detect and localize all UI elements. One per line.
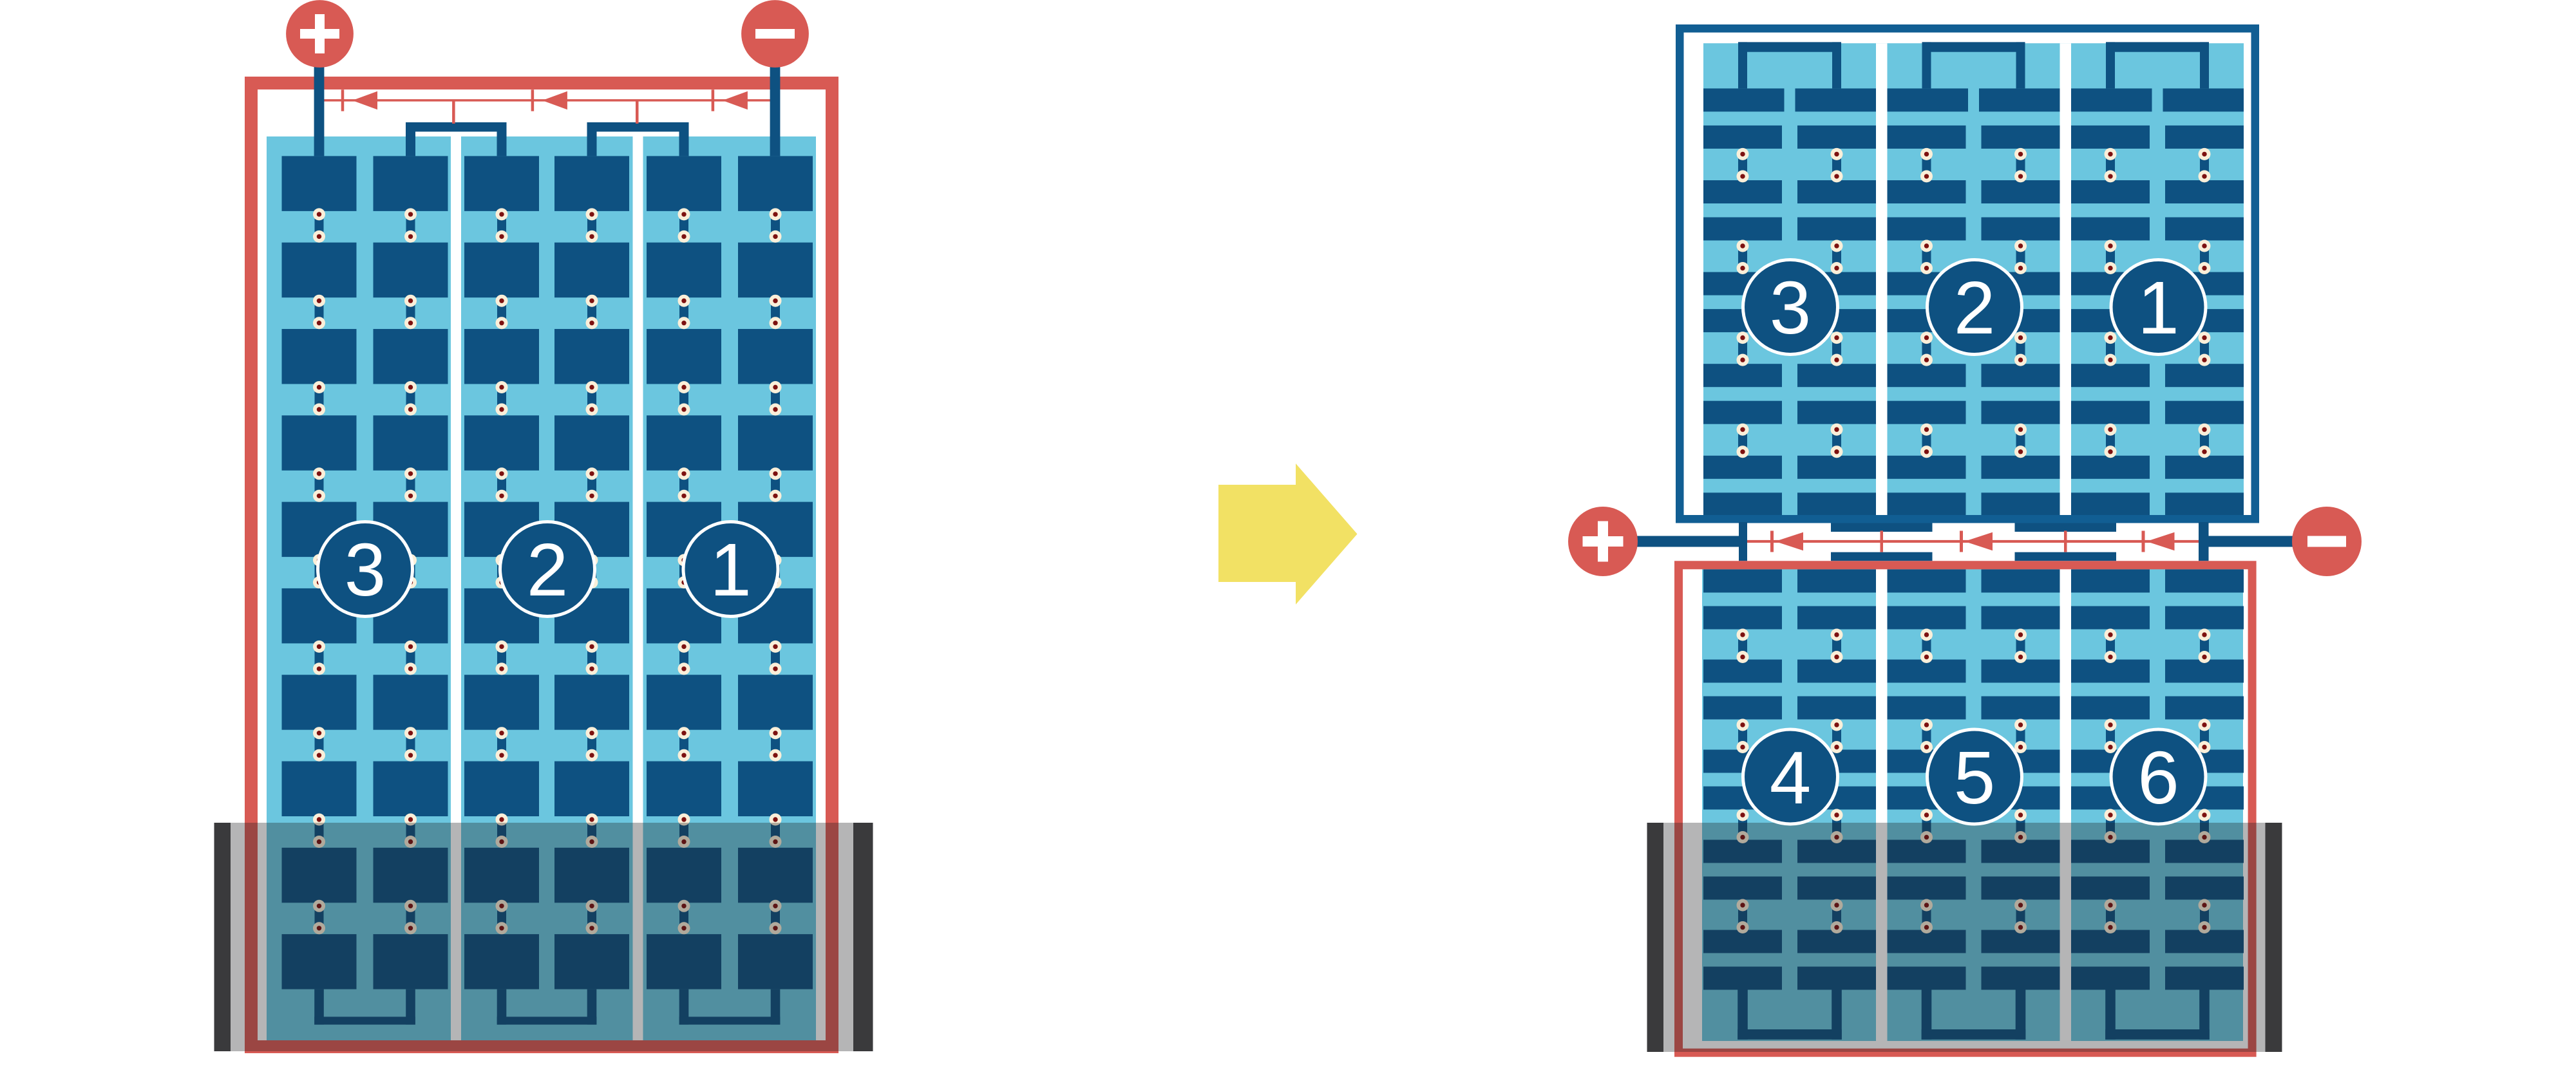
svg-text:2: 2 xyxy=(1954,266,1996,350)
svg-text:6: 6 xyxy=(2137,736,2179,820)
svg-text:1: 1 xyxy=(710,528,752,612)
svg-text:5: 5 xyxy=(1954,736,1996,820)
svg-text:2: 2 xyxy=(527,528,569,612)
svg-text:3: 3 xyxy=(345,528,386,612)
svg-text:4: 4 xyxy=(1770,736,1812,820)
svg-text:3: 3 xyxy=(1770,266,1812,350)
svg-text:1: 1 xyxy=(2137,266,2179,350)
